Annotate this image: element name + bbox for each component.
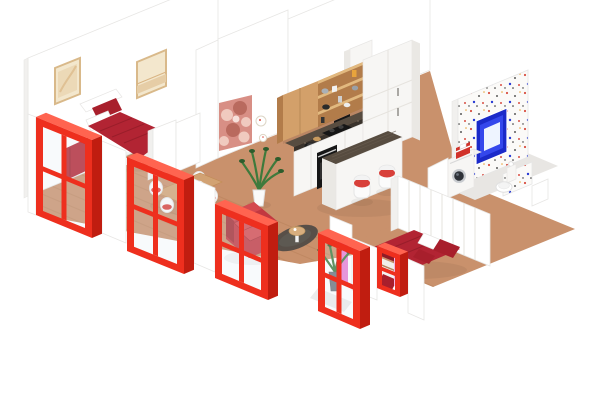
window2-side-face [184,176,194,274]
tall-cabinet-side [412,40,420,141]
window1-side-face [92,136,102,238]
window-frame-4 [318,229,370,329]
cutting-board [313,137,321,141]
coffee-table-item [294,228,297,231]
bathroom-right-wall [532,179,548,206]
front-stub-1 [102,141,126,243]
island-side-left [322,158,336,210]
front-stub-left [28,114,36,215]
window5-side-face [400,252,408,297]
floorplan-render: 3D isometric cutaway rendering of a smal… [0,0,600,400]
cabinet-side [277,95,283,144]
isometric-apartment-scene: 3D isometric cutaway rendering of a smal… [0,0,600,400]
bedroom1-side-edge [24,58,28,198]
bar-stool-1 [351,175,373,206]
front-stub-2 [194,179,215,272]
front-stub-right [408,259,424,320]
extractor-chimney-side [344,49,350,71]
window4-side-face [360,247,370,329]
washer-door [454,171,464,181]
accent-art-rose [219,95,252,151]
window3-side-face [268,222,278,300]
wardrobe-block-2 [176,113,200,172]
